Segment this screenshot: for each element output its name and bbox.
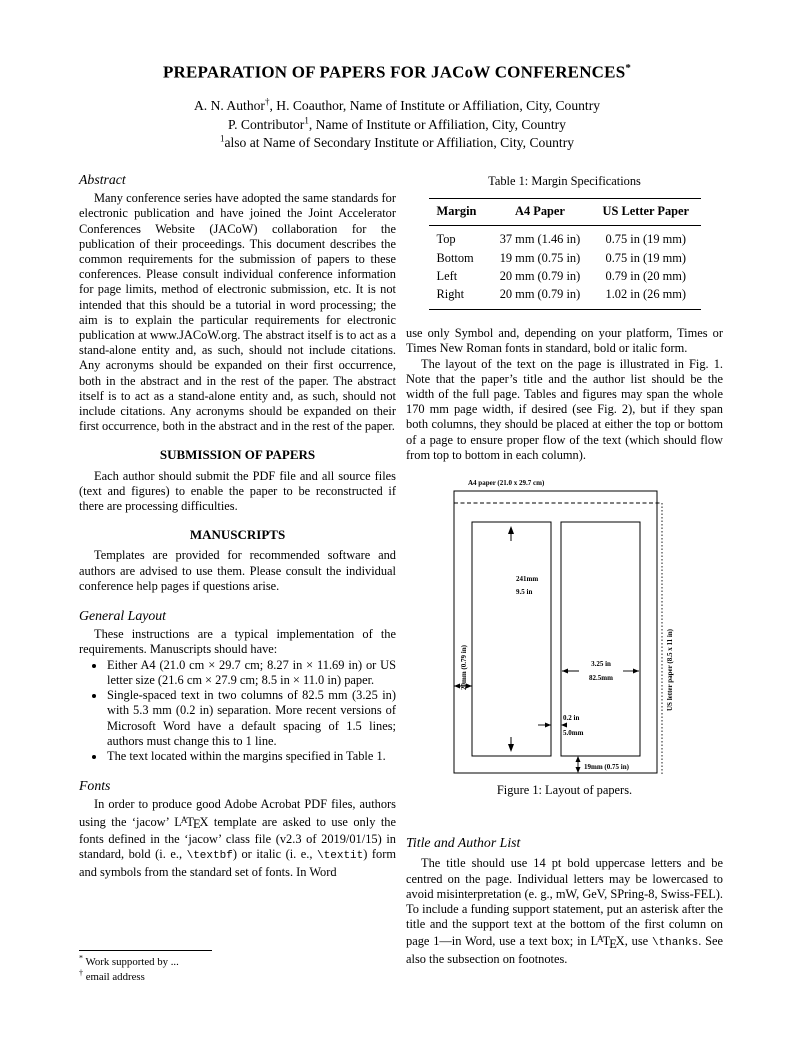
bullet-column-spec: Single-spaced text in two columns of 82.… (106, 688, 396, 749)
table-row: Bottom 19 mm (0.75 in) 0.75 in (19 mm) (429, 249, 701, 267)
general-layout-bullets: Either A4 (21.0 cm × 29.7 cm; 8.27 in × … (79, 658, 396, 764)
textbf-command: \textbf (187, 850, 233, 862)
col-width-arrow-right (633, 669, 639, 674)
table-row: Right 20 mm (0.79 in) 1.02 in (26 mm) (429, 286, 701, 310)
table-header-row: Margin A4 Paper US Letter Paper (429, 199, 701, 226)
latex-logo: LATEX (591, 934, 625, 948)
gap-arrow-left (561, 723, 567, 728)
gap-in-label: 0.2 in (563, 714, 579, 722)
col-header-usletter: US Letter Paper (591, 199, 700, 226)
paper-title-text: PREPARATION OF PAPERS FOR JACoW CONFEREN… (163, 63, 625, 82)
textit-command: \textit (317, 850, 363, 862)
margin-specifications-table: Margin A4 Paper US Letter Paper Top 37 m… (429, 198, 701, 310)
left-margin-arrow-right (466, 684, 472, 689)
abstract-paragraph: Many conference series have adopted the … (79, 191, 396, 434)
bottom-margin-label: 19mm (0.75 in) (584, 763, 630, 771)
up-arrow (508, 526, 514, 534)
bottom-margin-arrow-down (576, 767, 581, 773)
abstract-heading: Abstract (79, 172, 396, 187)
gap-mm-label: 5.0mm (563, 729, 584, 737)
table-row: Top 37 mm (1.46 in) 0.75 in (19 mm) (429, 226, 701, 249)
title-asterisk: * (625, 62, 631, 74)
left-margin-label: 20mm (0.79 in) (460, 644, 468, 690)
col-header-a4: A4 Paper (489, 199, 591, 226)
general-layout-heading: General Layout (79, 608, 396, 623)
down-arrow (508, 744, 514, 752)
table-row: Left 20 mm (0.79 in) 0.79 in (20 mm) (429, 267, 701, 285)
title-author-list-heading: Title and Author List (406, 835, 723, 850)
column-height-mm-label: 241mm (516, 575, 538, 583)
general-layout-intro: These instructions are a typical impleme… (79, 627, 396, 657)
fonts-heading: Fonts (79, 778, 396, 793)
author-line-1: A. N. Author†, H. Coauthor, Name of Inst… (0, 97, 794, 116)
submission-paragraph: Each author should submit the PDF file a… (79, 469, 396, 515)
col-header-margin: Margin (429, 199, 489, 226)
left-text-column-box (472, 522, 551, 756)
footnote-block: * Work supported by ... † email address (79, 950, 396, 985)
fonts-paragraph: In order to produce good Adobe Acrobat P… (79, 797, 396, 880)
footnote-funding: * Work supported by ... (79, 955, 396, 970)
paper-title: PREPARATION OF PAPERS FOR JACoW CONFEREN… (0, 62, 794, 83)
footnote-email: † email address (79, 970, 396, 985)
author-block: A. N. Author†, H. Coauthor, Name of Inst… (0, 97, 794, 153)
thanks-command: \thanks (652, 937, 698, 949)
bullet-margins: The text located within the margins spec… (106, 749, 396, 764)
a4-outline (454, 491, 657, 773)
bullet-paper-size: Either A4 (21.0 cm × 29.7 cm; 8.27 in × … (106, 658, 396, 688)
layout-paragraph: The layout of the text on the page is il… (406, 357, 723, 463)
paper-page: PREPARATION OF PAPERS FOR JACoW CONFEREN… (0, 0, 794, 1057)
layout-diagram: A4 paper (21.0 x 29.7 cm) 241mm 9.5 in 2… (406, 473, 723, 779)
right-column: Table 1: Margin Specifications Margin A4… (406, 172, 723, 967)
bottom-margin-arrow-up (576, 756, 581, 762)
manuscripts-paragraph: Templates are provided for recommended s… (79, 548, 396, 594)
us-letter-label: US letter paper (8.5 x 11 in) (666, 628, 674, 711)
latex-logo: LATEX (174, 815, 208, 829)
fonts-continuation-paragraph: use only Symbol and, depending on your p… (406, 326, 723, 356)
submission-heading: SUBMISSION OF PAPERS (79, 447, 396, 462)
table-caption: Table 1: Margin Specifications (406, 174, 723, 189)
column-height-in-label: 9.5 in (516, 588, 532, 596)
figure-caption: Figure 1: Layout of papers. (406, 783, 723, 798)
column-width-in-label: 3.25 in (591, 660, 611, 668)
column-width-mm-label: 82.5mm (589, 674, 613, 682)
author-line-2: P. Contributor1, Name of Institute or Af… (0, 116, 794, 135)
author-line-3: 1also at Name of Secondary Institute or … (0, 134, 794, 153)
footnote-rule (79, 950, 212, 951)
a4-paper-label: A4 paper (21.0 x 29.7 cm) (468, 479, 545, 487)
figure-1: A4 paper (21.0 x 29.7 cm) 241mm 9.5 in 2… (406, 473, 723, 798)
manuscripts-heading: MANUSCRIPTS (79, 527, 396, 542)
col-width-arrow-left (562, 669, 568, 674)
title-author-list-paragraph: The title should use 14 pt bold uppercas… (406, 856, 723, 967)
left-column: Abstract Many conference series have ado… (79, 172, 396, 880)
gap-arrow-right (545, 723, 551, 728)
left-margin-arrow-left (454, 684, 460, 689)
